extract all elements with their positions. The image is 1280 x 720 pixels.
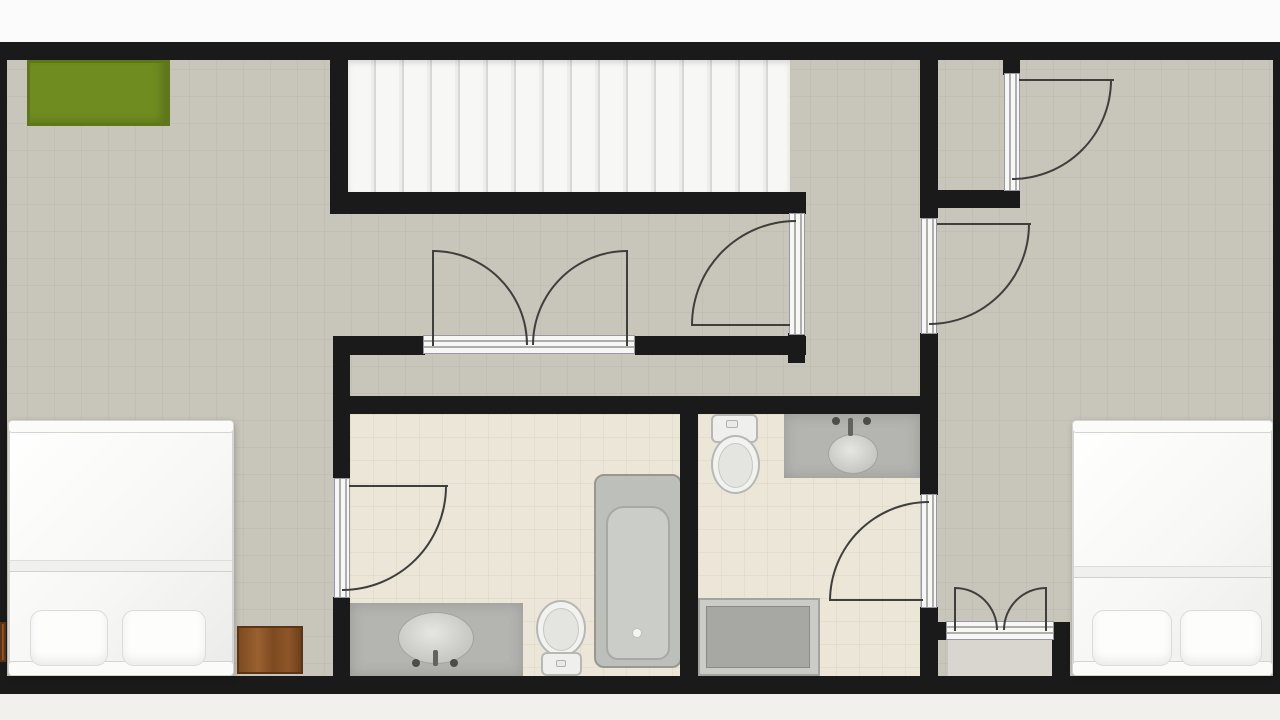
toilet2-flush-button [726, 420, 738, 428]
bed-right-fold [1074, 566, 1271, 578]
bed-left-headboard [8, 420, 234, 433]
vanity2-handle-left [832, 417, 840, 425]
wall-bedroom1-lower [333, 597, 350, 676]
outside-margin-top [0, 0, 1280, 42]
staircase [348, 60, 790, 192]
floor-plan [0, 0, 1280, 720]
double-door-right-leaf [626, 250, 628, 346]
bathtub-drain [632, 628, 642, 638]
wall-bathrooms-top [333, 396, 938, 414]
wall-stair-bottom [330, 192, 806, 214]
wall-vestibule-bottom [920, 190, 1020, 208]
nightstand [237, 626, 303, 674]
double-door-left-leaf [432, 250, 434, 346]
wall-right-corridor-low [920, 607, 938, 676]
wall-bath-divider [680, 414, 698, 676]
hallway-door-leaf [691, 324, 790, 326]
bedroom2-door-leaf [937, 223, 1031, 225]
toilet1-flush-button [556, 660, 566, 667]
wall-closet-right [1052, 622, 1070, 676]
bed-right-headboard [1072, 420, 1273, 433]
vanity1-handle-right [450, 659, 458, 667]
shower-base [706, 606, 810, 668]
bed-left-fold [10, 560, 232, 572]
wall-stair-left [330, 60, 348, 210]
toilet1-seat [543, 608, 579, 651]
vestibule-closet-door-leaf [1019, 79, 1114, 81]
closet-left-leaf [954, 587, 956, 631]
wall-outer-right [1273, 42, 1280, 694]
wall-outer-left [0, 42, 7, 694]
closet-floor [948, 640, 1052, 676]
closet-right-leaf [1045, 587, 1047, 631]
wall-right-corridor-mid [920, 333, 938, 495]
bed-left-pillow-2 [122, 610, 206, 666]
bed-left-pillow-1 [30, 610, 108, 666]
vanity2-sink [828, 434, 878, 474]
vanity1-faucet [433, 650, 438, 666]
wall-outer-top [0, 42, 1280, 60]
bed-right-pillow-1 [1092, 610, 1172, 666]
vanity1-handle-left [412, 659, 420, 667]
bed-right-pillow-2 [1180, 610, 1262, 666]
green-rug [27, 60, 170, 126]
wall-below-hall-door [788, 333, 805, 363]
wall-vestibule-door-stub [1003, 52, 1020, 75]
nightstand-edge-sliver [0, 622, 6, 662]
vanity2-handle-right [863, 417, 871, 425]
bathroom2-door-leaf [830, 599, 923, 601]
wall-hall-left-of-doors [333, 336, 425, 355]
outside-margin-bottom [0, 694, 1280, 720]
bathroom1-door-leaf [349, 485, 448, 487]
wall-outer-bottom [0, 676, 1280, 694]
toilet2-seat [718, 443, 753, 488]
vanity2-faucet [848, 418, 853, 436]
wall-hall-right-of-doors [635, 336, 806, 355]
